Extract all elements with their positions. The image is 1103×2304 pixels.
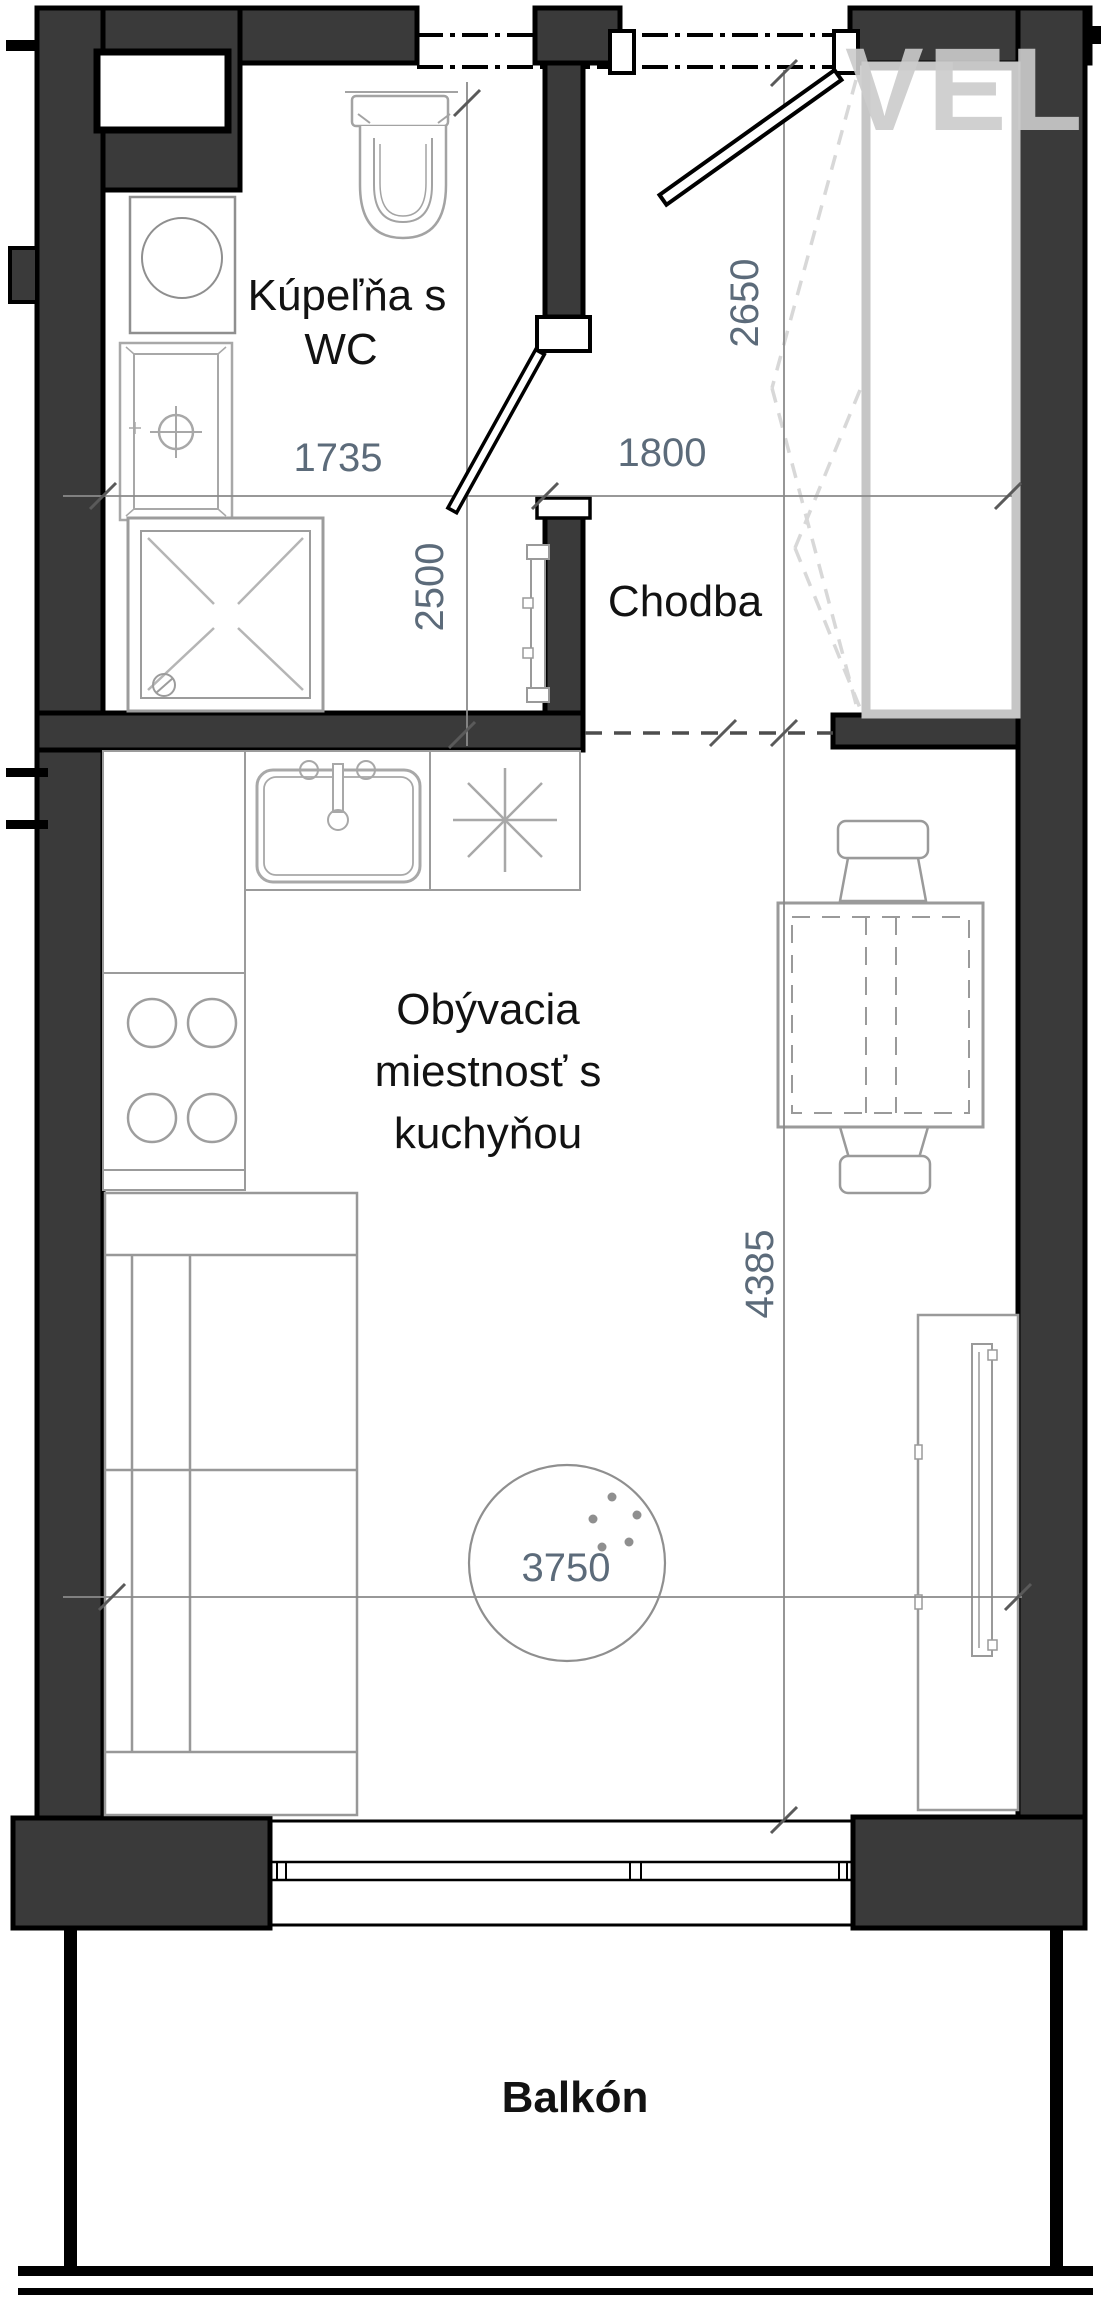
room-label-bathroom-line1: Kúpeľňa s [248, 271, 447, 320]
tv-cabinet-icon [915, 1315, 1018, 1810]
dining-chair-top [838, 821, 928, 901]
room-label-bathroom-line2: WC [304, 325, 377, 374]
wall-left [37, 8, 103, 1818]
wardrobe-icon [866, 66, 1016, 714]
bath-door-jamb-top [537, 317, 590, 351]
floor-plan: Kúpeľňa s WC Chodba Obývacia miestnosť s… [0, 0, 1103, 2304]
washbasin-icon [120, 343, 232, 520]
floor-plan-canvas: Kúpeľňa s WC Chodba Obývacia miestnosť s… [0, 0, 1103, 2304]
wall-bath-divider-upper [545, 63, 583, 317]
left-stub [10, 248, 37, 302]
room-label-hallway: Chodba [608, 577, 763, 626]
wall-bath-divider-lower [545, 516, 583, 713]
wall-bath-bottom [37, 713, 583, 750]
dim-ceiling-height: 3750 [522, 1546, 611, 1590]
room-label-living-line3: kuchyňou [394, 1109, 582, 1158]
dim-bathroom-width: 1735 [294, 436, 383, 480]
hob-star-icon [453, 768, 557, 872]
wall-top-a [240, 8, 417, 63]
shower-icon [128, 518, 323, 711]
dining-chair-bottom [840, 1127, 930, 1193]
left-stub-mid1 [6, 768, 48, 777]
right-stub-top [1085, 26, 1101, 44]
bath-door-jamb-bottom [537, 498, 590, 518]
room-label-living-line2: miestnosť s [375, 1047, 602, 1096]
wall-right [1018, 8, 1085, 1928]
left-stub-mid2 [6, 820, 48, 829]
balcony-rail-right [1050, 1928, 1063, 2268]
watermark-text: VEL [845, 24, 1087, 156]
balcony-rail-front2 [18, 2288, 1093, 2295]
left-stub-top [6, 40, 37, 51]
dining-table-icon [778, 903, 983, 1127]
balcony-rail-front [18, 2266, 1093, 2276]
kitchen-sink-icon [257, 761, 420, 882]
shaft-niche [97, 52, 228, 130]
wall-bottomleft-block [13, 1818, 270, 1928]
room-label-living-line1: Obývacia [396, 985, 580, 1034]
room-label-balcony: Balkón [502, 2073, 649, 2122]
sofa-icon [105, 1193, 357, 1815]
dim-bathroom-depth: 2500 [408, 543, 452, 632]
dim-hallway-width: 1800 [618, 431, 707, 475]
dim-living-depth: 4385 [738, 1230, 782, 1319]
entry-jamb-left [610, 31, 634, 73]
wall-top-t [535, 8, 620, 63]
dim-entry-depth: 2650 [723, 259, 767, 348]
wall-bottomright-block [853, 1817, 1085, 1928]
wall-wardrobe-stub [833, 715, 1018, 747]
washing-machine-icon [130, 197, 235, 333]
balcony-rail-left [64, 1928, 77, 2268]
